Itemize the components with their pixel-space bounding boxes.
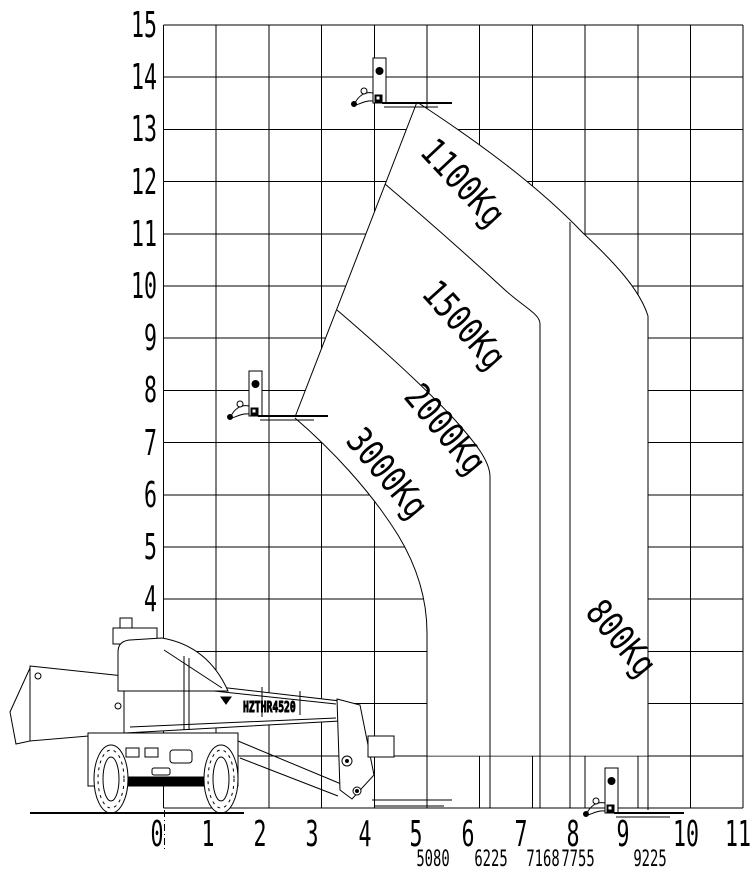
reach-mm-label: 5080 [416, 847, 449, 872]
y-tick: 11 [131, 212, 157, 254]
machine-model-label: HZTHR4520 [243, 698, 296, 716]
y-tick: 10 [131, 264, 157, 306]
x-tick: 11 [725, 812, 751, 854]
x-tick: 6 [461, 812, 474, 854]
x-tick: 3 [305, 812, 318, 854]
reach-mm-label: 7755 [561, 847, 594, 872]
x-tick: 1 [201, 812, 214, 854]
y-tick: 6 [144, 473, 157, 515]
y-tick: 13 [131, 107, 157, 149]
reach-mm-label: 6225 [474, 847, 507, 872]
reach-mm-label: 7168 [526, 847, 559, 872]
y-tick: 7 [144, 421, 157, 463]
y-tick: 4 [144, 577, 157, 619]
load-chart: 15 14 13 12 11 10 9 8 7 6 5 4 3 0 1 2 3 … [0, 0, 753, 876]
y-tick: 9 [144, 316, 157, 358]
x-tick: 0 [150, 812, 163, 854]
y-tick: 14 [131, 55, 157, 97]
fork-symbol-bottom [584, 768, 685, 817]
x-axis: 0 1 2 3 4 5 6 7 8 9 10 11 5080 6225 7168… [150, 810, 751, 872]
y-tick: 8 [144, 368, 157, 410]
x-tick: 10 [673, 812, 699, 854]
telehandler-drawing: HZTHR4520 [10, 618, 452, 813]
x-tick: 4 [358, 812, 371, 854]
y-tick: 5 [144, 525, 157, 567]
y-axis: 15 14 13 12 11 10 9 8 7 6 5 4 3 [131, 3, 157, 671]
fork-symbol-top [352, 58, 453, 107]
y-tick: 15 [131, 3, 157, 45]
y-tick: 12 [131, 160, 157, 202]
reach-mm-label: 9225 [633, 847, 666, 872]
x-tick: 2 [253, 812, 266, 854]
x-tick: 7 [514, 812, 527, 854]
x-tick: 9 [616, 812, 629, 854]
